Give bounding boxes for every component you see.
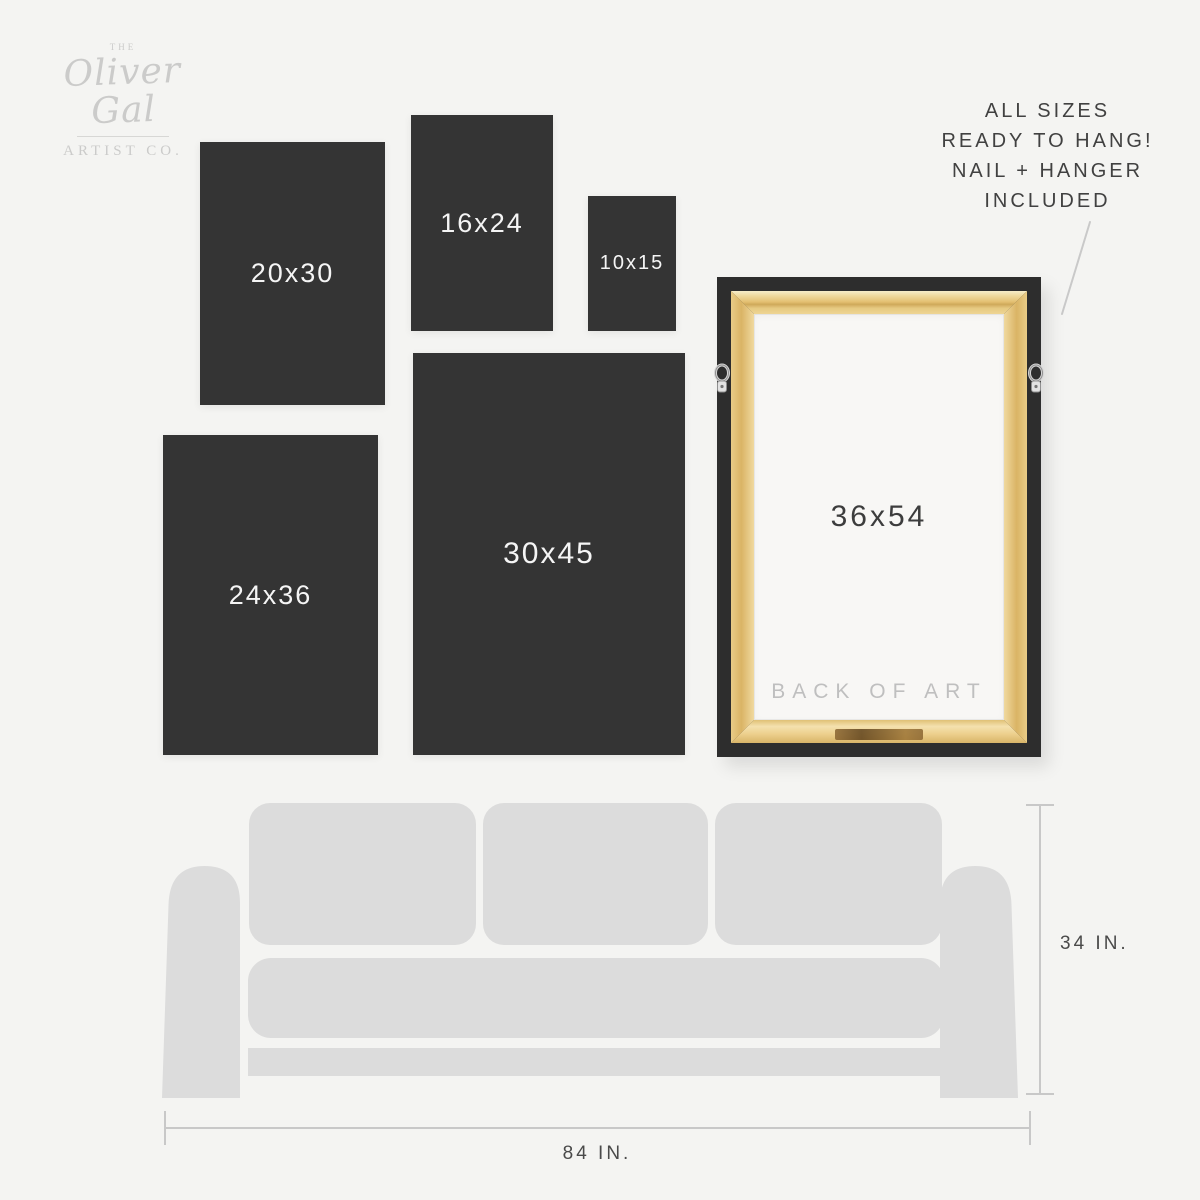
pointer-line [1055,215,1100,320]
couch-armrest-right [940,866,1018,1098]
width-dimension-cap-right [1029,1111,1031,1145]
couch-back-cushion [715,803,942,945]
size-label: 36x54 [831,500,928,534]
back-of-art-label: BACK OF ART [754,680,1004,704]
stretcher-bar-top [731,291,1027,314]
height-dimension-cap-bottom [1026,1093,1054,1095]
ready-to-hang-note: ALL SIZES READY TO HANG! NAIL + HANGER I… [915,96,1180,216]
brand-logo: THE Oliver Gal ARTIST CO. [38,42,208,160]
size-panel-10x15: 10x15 [588,196,676,331]
stretcher-bar-left [731,291,754,743]
couch-back-cushion [249,803,476,945]
size-panel-24x36: 24x36 [163,435,378,755]
stretcher-bar-right [1004,291,1027,743]
couch-silhouette [150,790,1050,1110]
couch-back-cushion [483,803,708,945]
logo-prefix: THE [38,42,208,52]
size-label: 30x45 [503,537,595,571]
canvas-back: 36x54 BACK OF ART [754,314,1004,720]
d-ring-hanger-icon [1025,362,1047,398]
note-line-2: READY TO HANG! [915,126,1180,156]
size-comparison-diagram: THE Oliver Gal ARTIST CO. ALL SIZES READ… [0,0,1200,1200]
size-label: 10x15 [600,252,665,275]
size-label: 24x36 [229,580,313,611]
width-dimension-label: 84 IN. [517,1143,677,1165]
size-panel-16x24: 16x24 [411,115,553,331]
height-dimension-cap-top [1026,804,1054,806]
couch-base [248,1048,942,1076]
logo-divider [77,136,169,137]
height-dimension-line [1039,805,1041,1095]
logo-name: Oliver Gal [37,51,210,132]
frame-back-36x54: 36x54 BACK OF ART [717,277,1041,757]
size-panel-30x45: 30x45 [413,353,685,755]
note-line-4: INCLUDED [915,186,1180,216]
logo-suffix: ARTIST CO. [38,143,208,160]
height-dimension-label: 34 IN. [1060,933,1129,955]
width-dimension-line [165,1127,1031,1129]
d-ring-hanger-icon [711,362,733,398]
size-label: 16x24 [440,208,524,239]
couch-seat-cushion [248,958,944,1038]
couch-armrest-left [162,866,240,1098]
width-dimension-cap-left [164,1111,166,1145]
note-line-3: NAIL + HANGER [915,156,1180,186]
wood-stamp [835,729,923,740]
size-label: 20x30 [251,258,335,289]
note-line-1: ALL SIZES [915,96,1180,126]
size-panel-20x30: 20x30 [200,142,385,405]
